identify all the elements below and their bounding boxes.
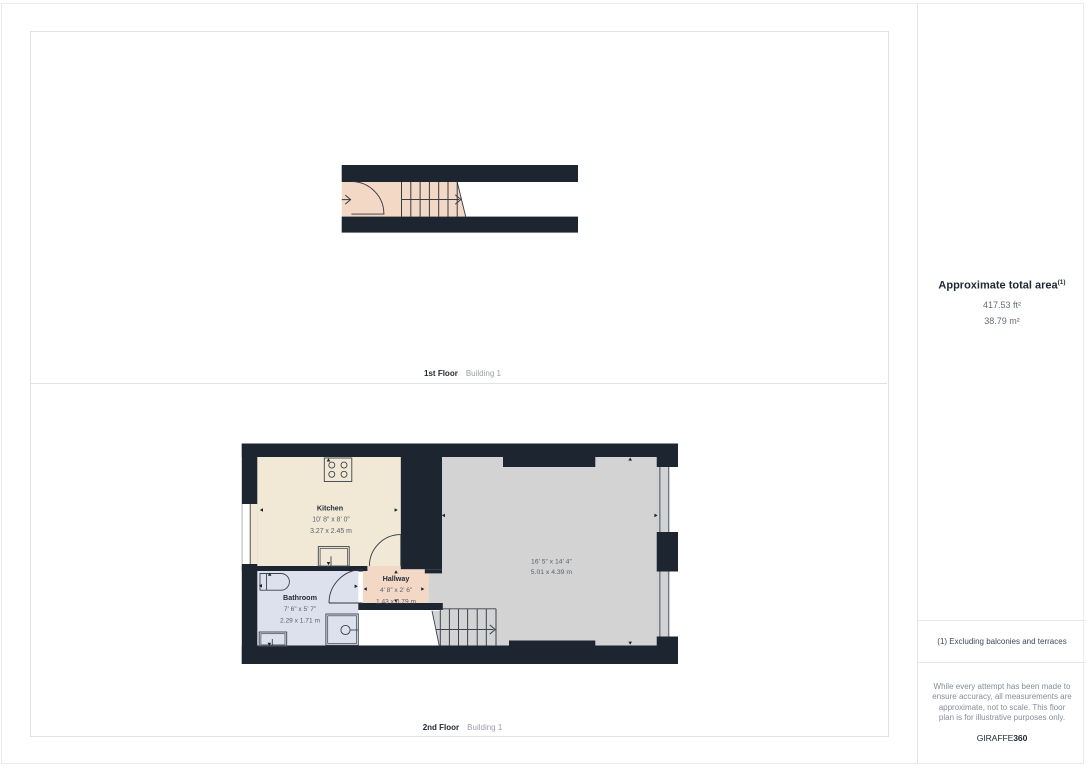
svg-text:2.29 x 1.71 m: 2.29 x 1.71 m (280, 617, 320, 624)
svg-text:Hallway: Hallway (383, 574, 410, 583)
svg-text:10’ 8” x 8’ 0”: 10’ 8” x 8’ 0” (312, 517, 350, 524)
svg-text:16’ 5” x 14’ 4”: 16’ 5” x 14’ 4” (531, 558, 572, 565)
svg-text:Kitchen: Kitchen (317, 503, 343, 512)
svg-text:Bathroom: Bathroom (283, 593, 317, 602)
svg-text:7’ 6” x 5’ 7”: 7’ 6” x 5’ 7” (284, 606, 316, 613)
svg-text:5.01 x 4.39 m: 5.01 x 4.39 m (531, 569, 573, 576)
svg-text:3.27 x 2.45 m: 3.27 x 2.45 m (310, 528, 352, 535)
svg-text:1.43 x 0.79 m: 1.43 x 0.79 m (376, 598, 416, 605)
svg-text:4’ 8” x 2’ 6”: 4’ 8” x 2’ 6” (380, 587, 412, 594)
